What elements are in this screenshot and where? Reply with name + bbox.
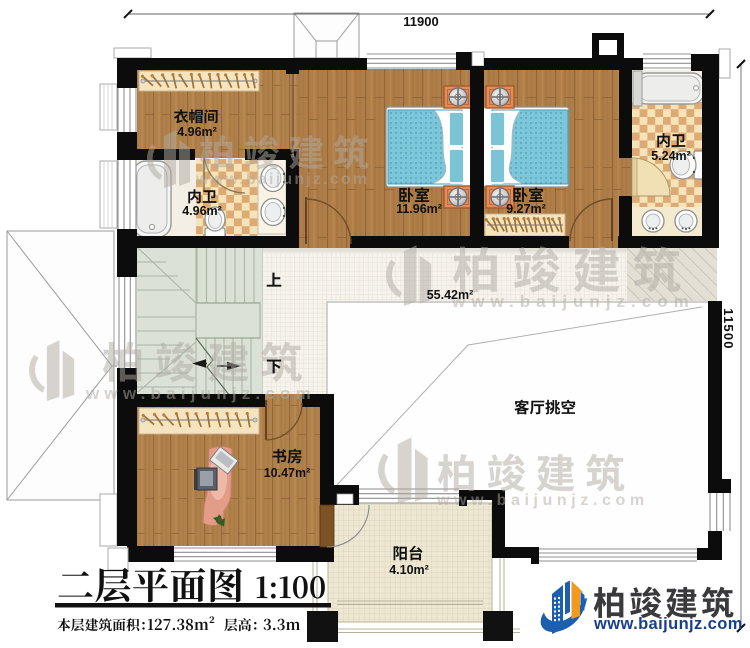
svg-text:4.96m²: 4.96m²: [182, 204, 222, 218]
svg-text:www.baijunjz.com: www.baijunjz.com: [436, 492, 649, 509]
svg-text:5.24m²: 5.24m²: [651, 149, 691, 163]
svg-text:4.10m²: 4.10m²: [389, 563, 429, 577]
svg-text:10.47m²: 10.47m²: [264, 466, 311, 480]
svg-text:www.baijunjz.com: www.baijunjz.com: [451, 292, 695, 311]
svg-text:11500: 11500: [721, 308, 736, 349]
svg-text:11900: 11900: [403, 14, 438, 29]
svg-text:55.42m²: 55.42m²: [427, 288, 474, 302]
svg-text:www.baijunjz.com: www.baijunjz.com: [85, 384, 316, 403]
svg-text:9.27m²: 9.27m²: [506, 202, 546, 216]
svg-text:11.96m²: 11.96m²: [396, 202, 442, 216]
svg-text:4.96m²: 4.96m²: [177, 125, 217, 139]
svg-text:www.baijunjz.com: www.baijunjz.com: [195, 171, 369, 188]
svg-text:www.baijunjz.com: www.baijunjz.com: [593, 615, 743, 633]
